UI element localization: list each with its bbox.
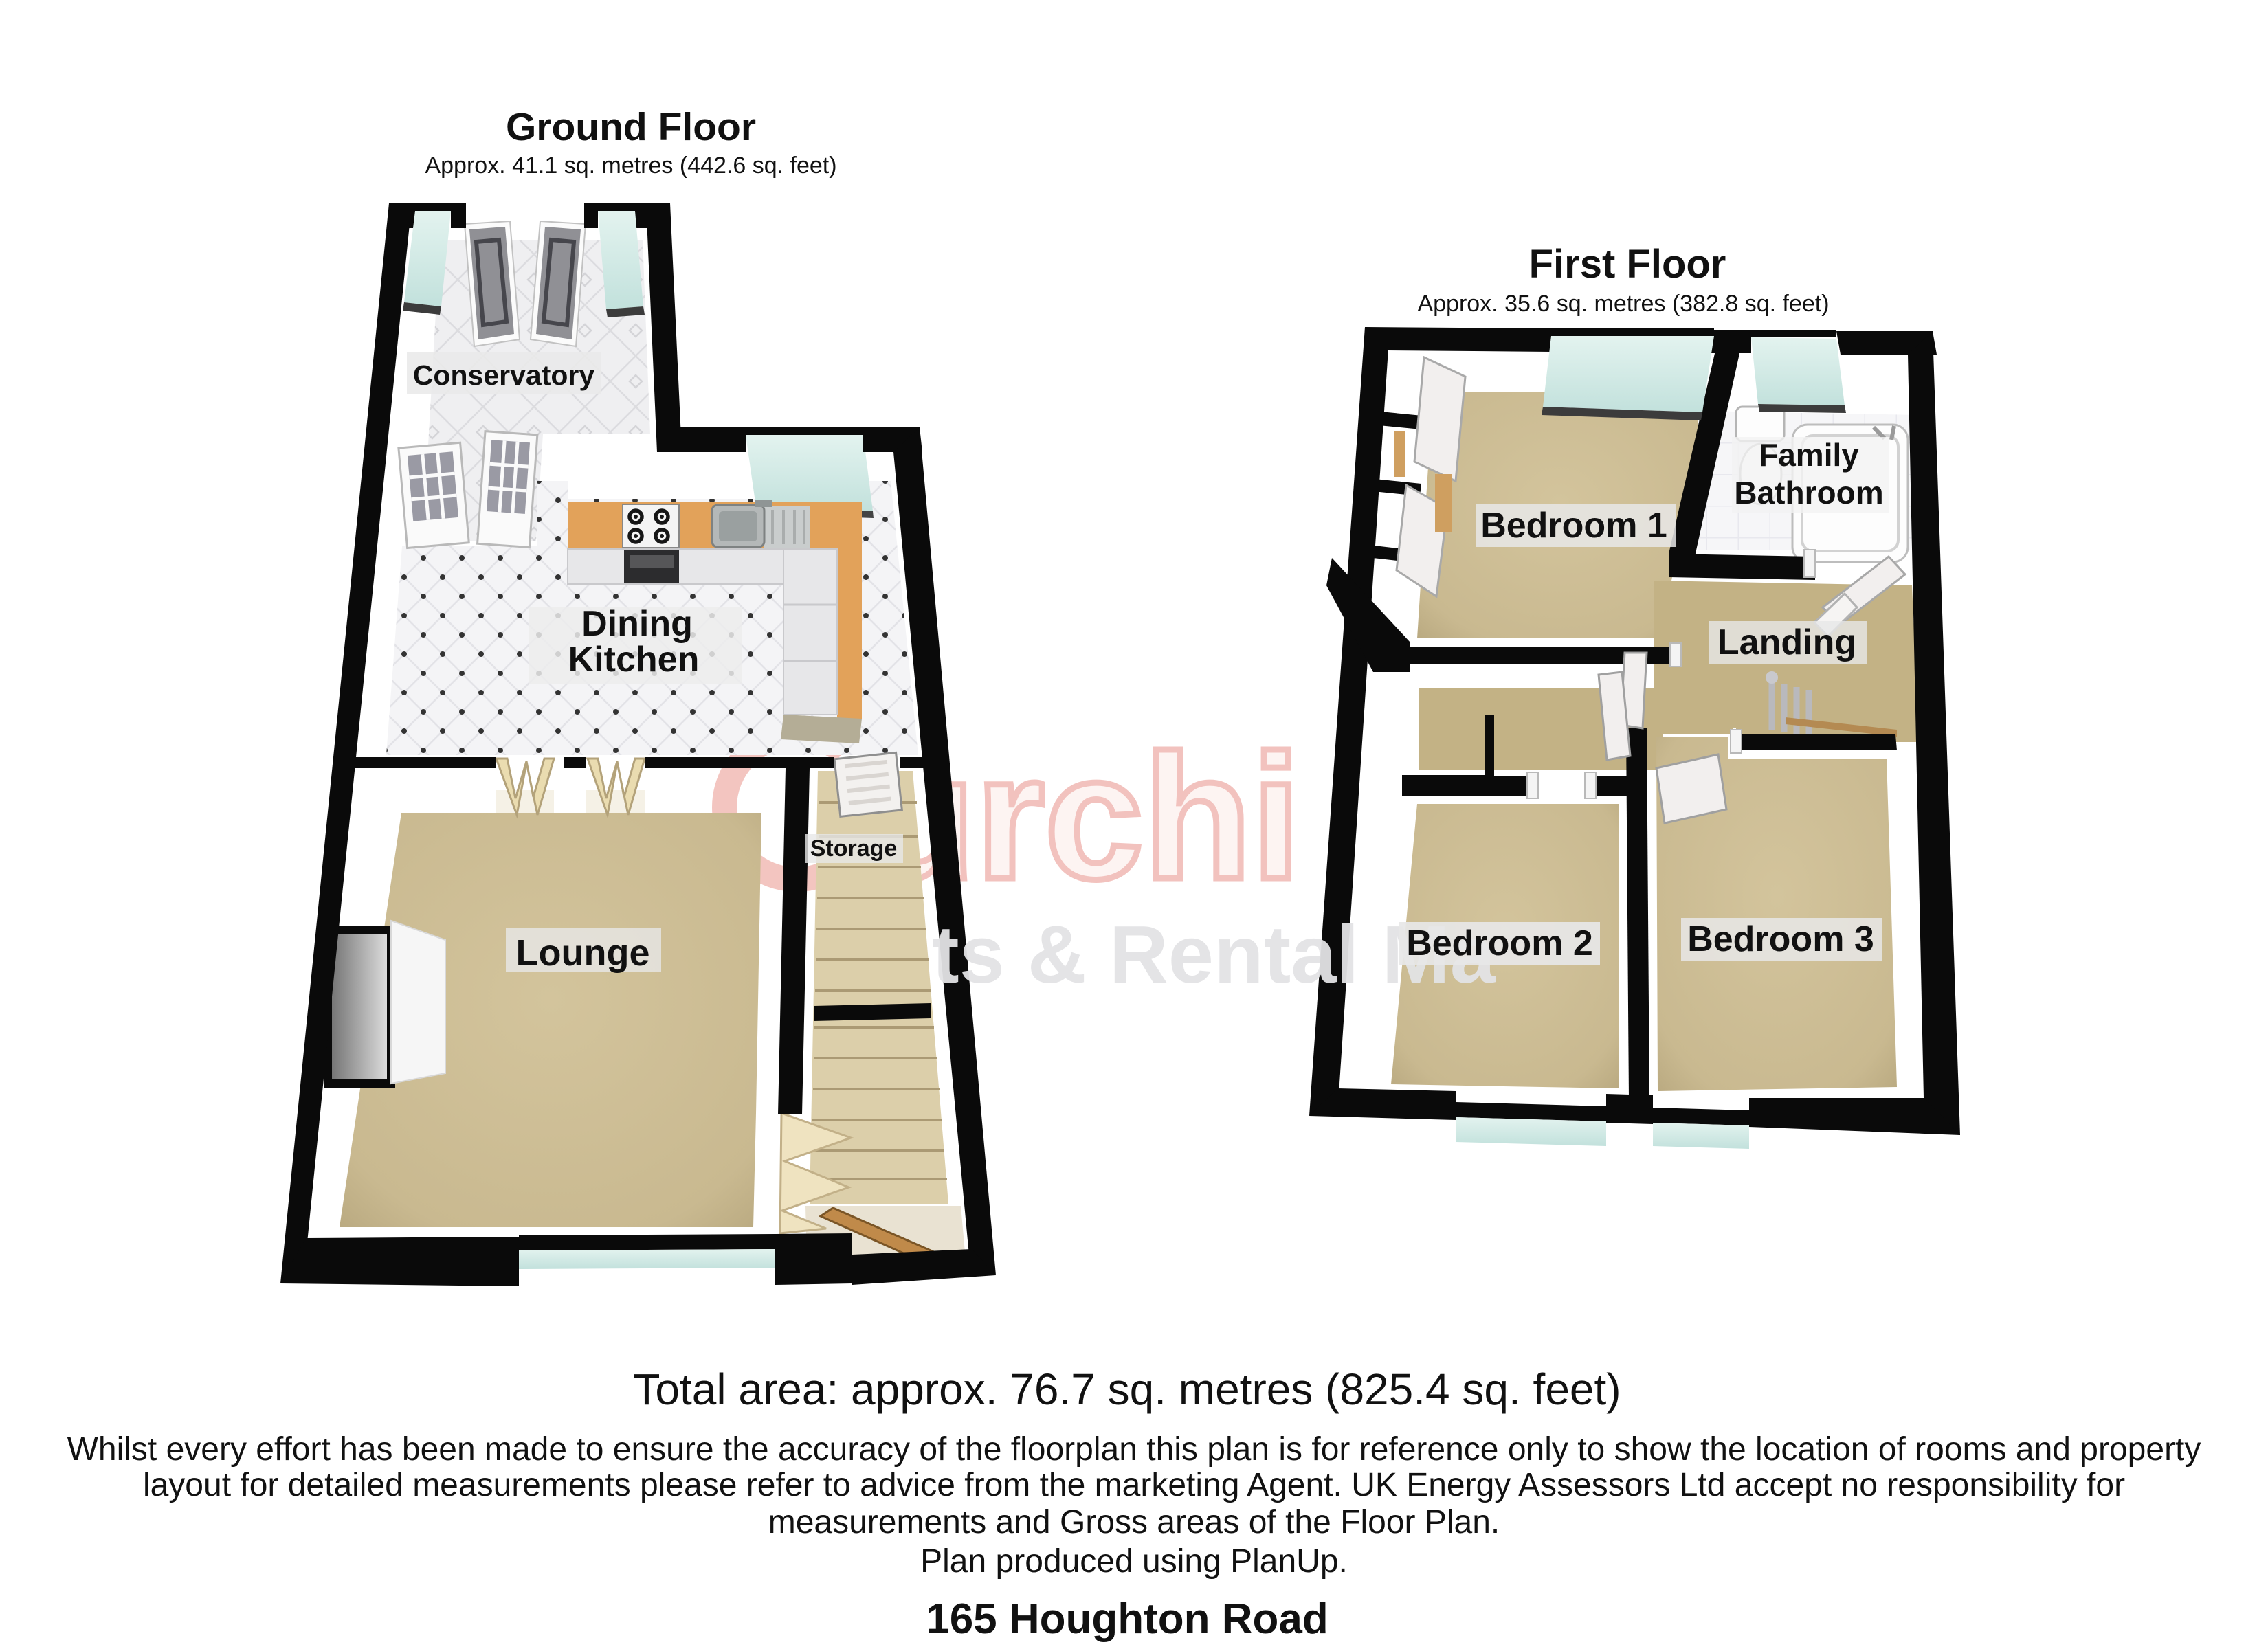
- svg-text:Total area: approx. 76.7 sq. m: Total area: approx. 76.7 sq. metres (825…: [633, 1365, 1621, 1414]
- svg-text:Approx. 41.1 sq. metres (442.6: Approx. 41.1 sq. metres (442.6 sq. feet): [425, 153, 836, 179]
- svg-text:Whilst every effort has been m: Whilst every effort has been made to ens…: [67, 1431, 2201, 1468]
- svg-text:Kitchen: Kitchen: [568, 640, 700, 680]
- svg-text:layout for detailed measuremen: layout for detailed measurements please …: [143, 1467, 2125, 1503]
- svg-text:Bedroom 1: Bedroom 1: [1480, 506, 1667, 546]
- svg-text:Bathroom: Bathroom: [1734, 475, 1883, 511]
- svg-text:Landing: Landing: [1717, 622, 1856, 662]
- svg-text:Conservatory: Conservatory: [413, 359, 595, 391]
- svg-text:Bedroom 2: Bedroom 2: [1406, 923, 1593, 963]
- svg-text:165 Houghton Road: 165 Houghton Road: [926, 1595, 1328, 1643]
- svg-text:measurements and Gross areas o: measurements and Gross areas of the Floo…: [768, 1504, 1500, 1540]
- svg-text:Storage: Storage: [810, 835, 898, 862]
- svg-text:Family: Family: [1759, 437, 1859, 473]
- svg-text:Plan produced using PlanUp.: Plan produced using PlanUp.: [920, 1543, 1348, 1580]
- svg-text:Ground Floor: Ground Floor: [506, 105, 756, 149]
- svg-text:Lounge: Lounge: [516, 932, 650, 974]
- svg-text:Bedroom 3: Bedroom 3: [1687, 919, 1874, 959]
- svg-text:First Floor: First Floor: [1529, 242, 1726, 287]
- svg-text:Approx. 35.6 sq. metres (382.8: Approx. 35.6 sq. metres (382.8 sq. feet): [1417, 291, 1829, 317]
- svg-text:Dining: Dining: [581, 604, 693, 644]
